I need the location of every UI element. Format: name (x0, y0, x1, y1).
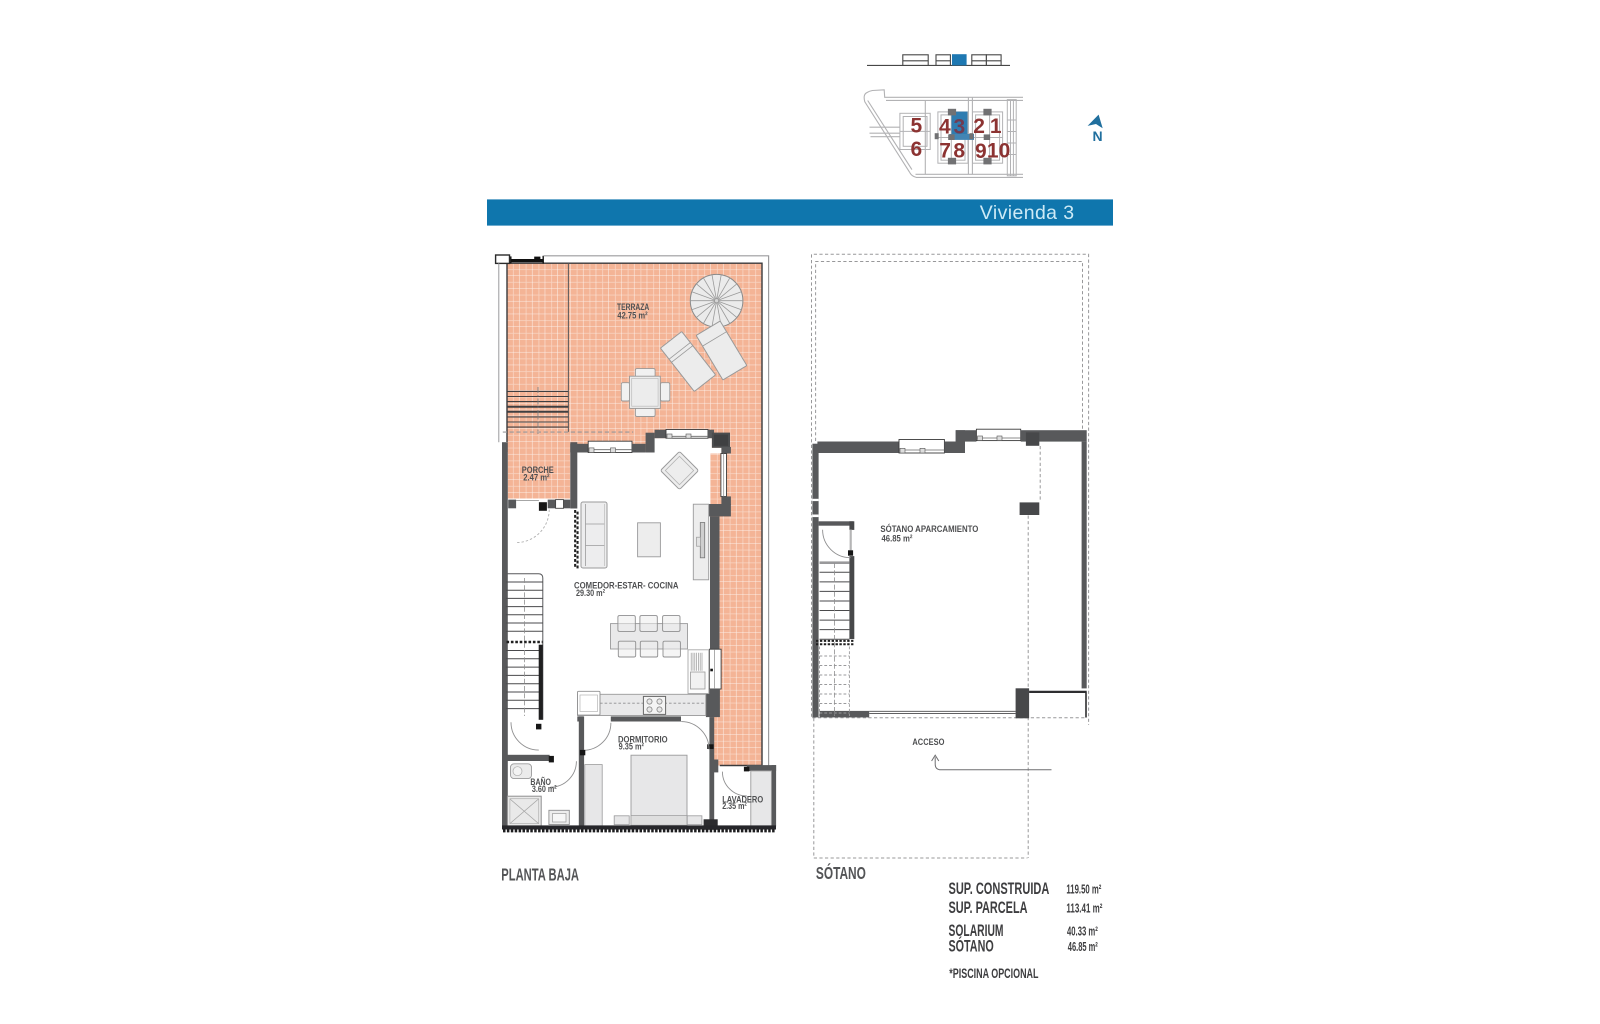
svg-text:6: 6 (910, 138, 922, 161)
svg-text:ACCESO: ACCESO (912, 737, 944, 747)
svg-text:10: 10 (987, 139, 1010, 162)
svg-text:3.60 m²: 3.60 m² (532, 783, 557, 794)
svg-text:SÓTANO: SÓTANO (949, 937, 994, 956)
svg-text:40.33 m²: 40.33 m² (1067, 925, 1098, 939)
svg-text:29.30 m²: 29.30 m² (576, 588, 605, 599)
svg-text:1: 1 (990, 115, 1002, 138)
svg-text:PLANTA BAJA: PLANTA BAJA (501, 865, 579, 885)
svg-text:119.50 m²: 119.50 m² (1066, 882, 1101, 896)
svg-text:9.35 m²: 9.35 m² (619, 742, 644, 753)
svg-text:SÓTANO: SÓTANO (816, 862, 866, 883)
svg-text:42.75 m²: 42.75 m² (617, 310, 647, 321)
svg-text:2: 2 (973, 115, 985, 138)
svg-text:7: 7 (939, 139, 951, 162)
svg-text:2.47 m²: 2.47 m² (523, 471, 549, 482)
svg-text:4: 4 (939, 116, 951, 139)
svg-text:46.85 m²: 46.85 m² (882, 533, 913, 544)
svg-text:8: 8 (953, 140, 965, 163)
svg-text:5: 5 (910, 115, 922, 138)
svg-text:2.35 m²: 2.35 m² (722, 800, 747, 811)
svg-text:Vivienda 3: Vivienda 3 (980, 202, 1075, 224)
svg-text:9: 9 (975, 140, 987, 163)
svg-text:*PISCINA OPCIONAL: *PISCINA OPCIONAL (949, 966, 1038, 981)
svg-text:3: 3 (954, 116, 966, 139)
svg-text:N: N (1092, 128, 1102, 144)
svg-text:SUP. PARCELA: SUP. PARCELA (949, 899, 1028, 917)
svg-text:46.85 m²: 46.85 m² (1068, 940, 1098, 954)
svg-text:113.41 m²: 113.41 m² (1066, 902, 1102, 916)
svg-text:SUP. CONSTRUIDA: SUP. CONSTRUIDA (949, 880, 1050, 898)
